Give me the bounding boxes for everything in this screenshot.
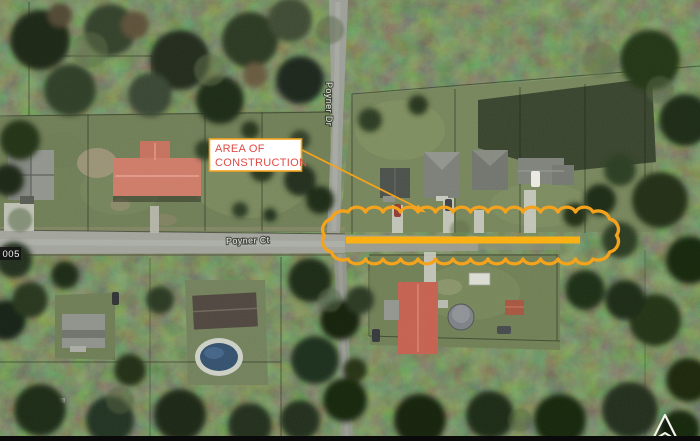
street-label-poyner-ct: Poyner Ct	[226, 235, 270, 246]
parcel-edge-label: 005	[3, 249, 20, 260]
street-label-poyner-dr: Poyner Dr	[324, 82, 334, 126]
map-frame-bottom-border	[0, 436, 700, 441]
aerial-map-exhibit: Poyner Ct Poyner Dr 005 AREA OF CONSTRUC…	[0, 0, 700, 441]
annotation-callout-box: AREA OF CONSTRUCTION	[210, 139, 308, 171]
photo-grain-overlay	[0, 0, 700, 441]
aerial-map: Poyner Ct Poyner Dr 005 AREA OF CONSTRUC…	[0, 0, 700, 441]
parcel-edge-chip: 005	[0, 247, 21, 260]
annotation-label-line1: AREA OF	[215, 143, 265, 155]
annotation-label-line2: CONSTRUCTION	[215, 157, 307, 169]
